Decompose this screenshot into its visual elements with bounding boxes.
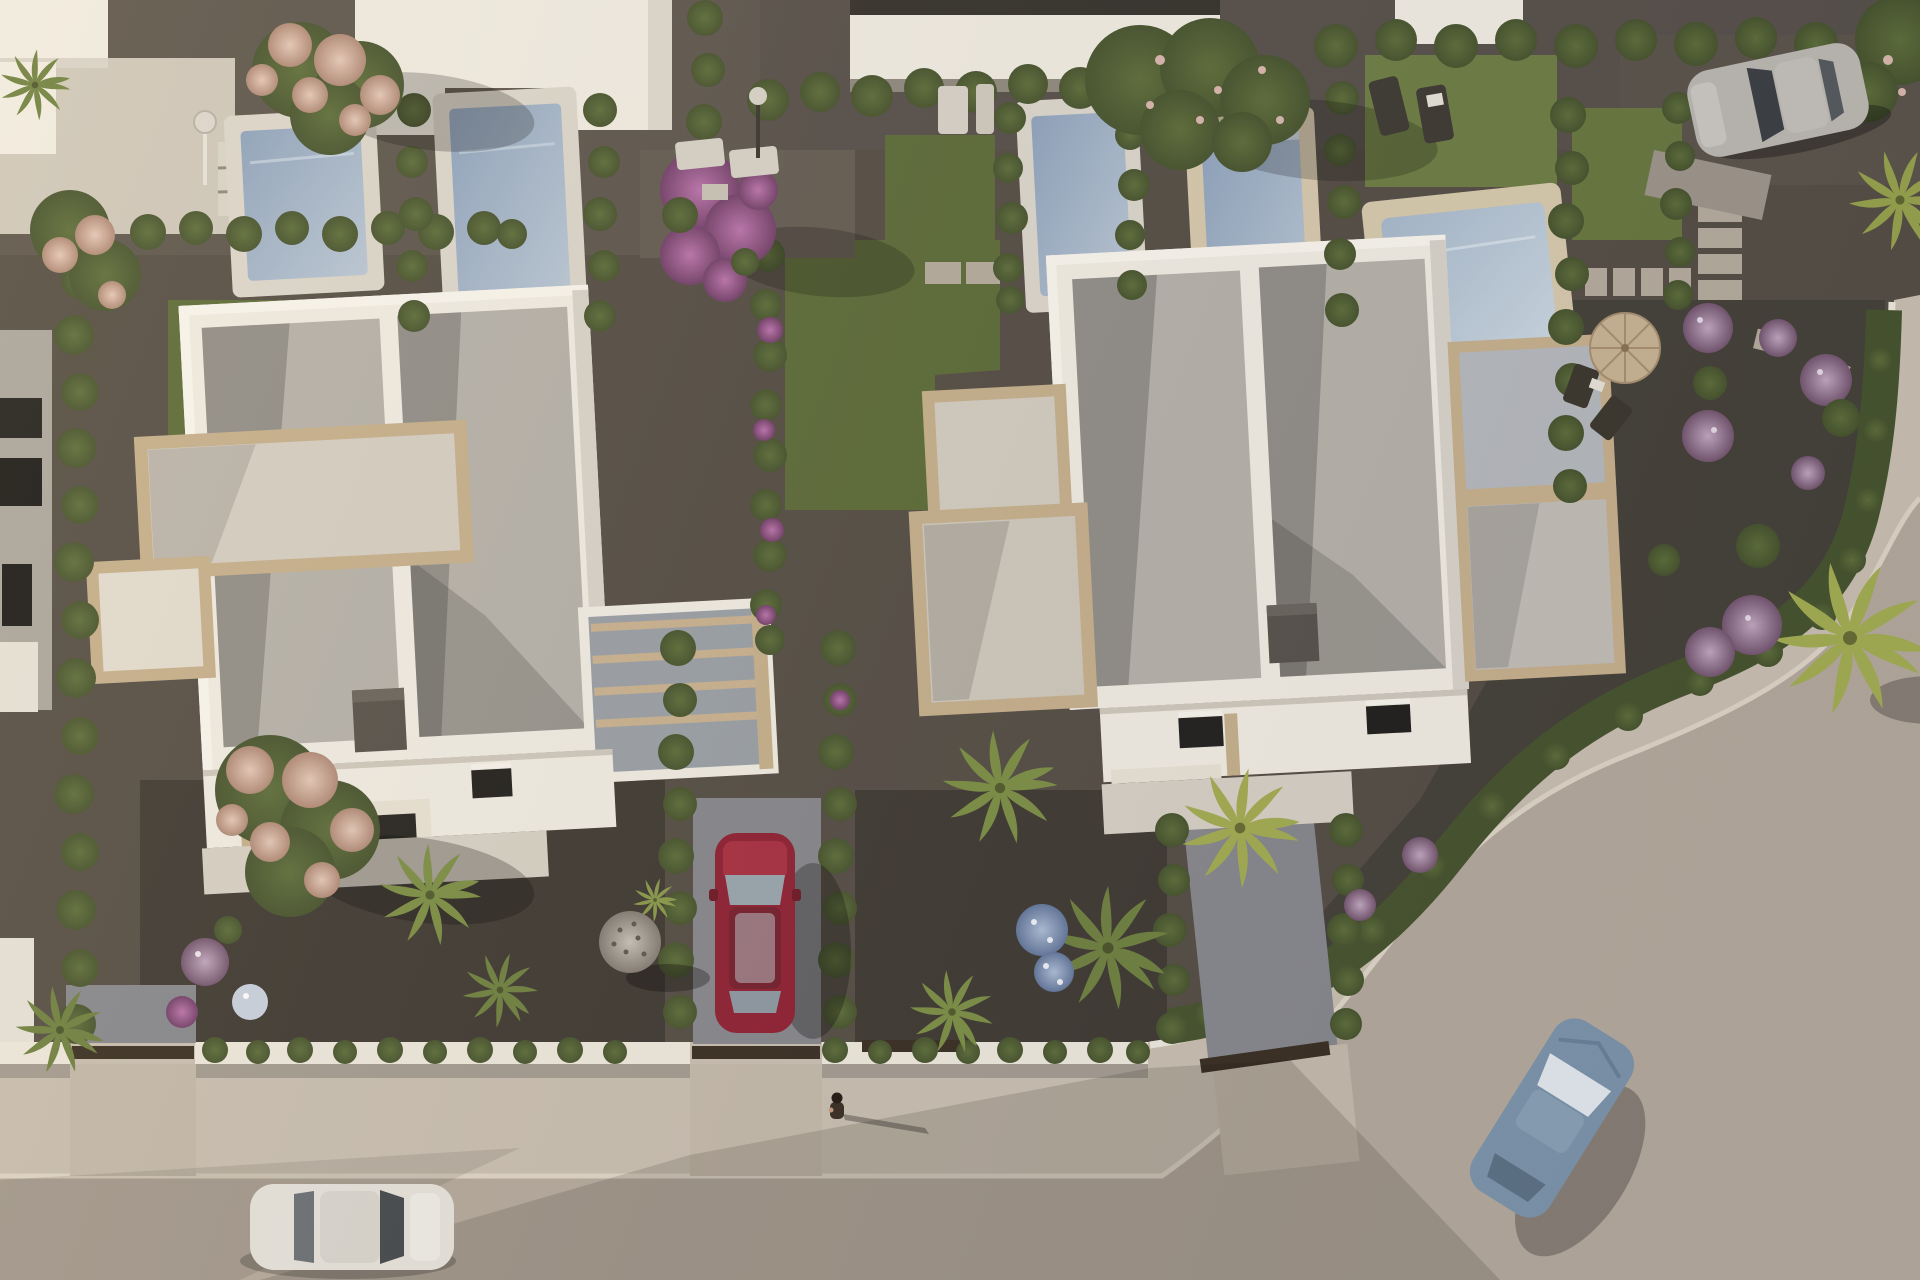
sunlight-overlay: [0, 0, 1920, 1280]
render-canvas: [0, 0, 1920, 1280]
aerial-render: [0, 0, 1920, 1280]
